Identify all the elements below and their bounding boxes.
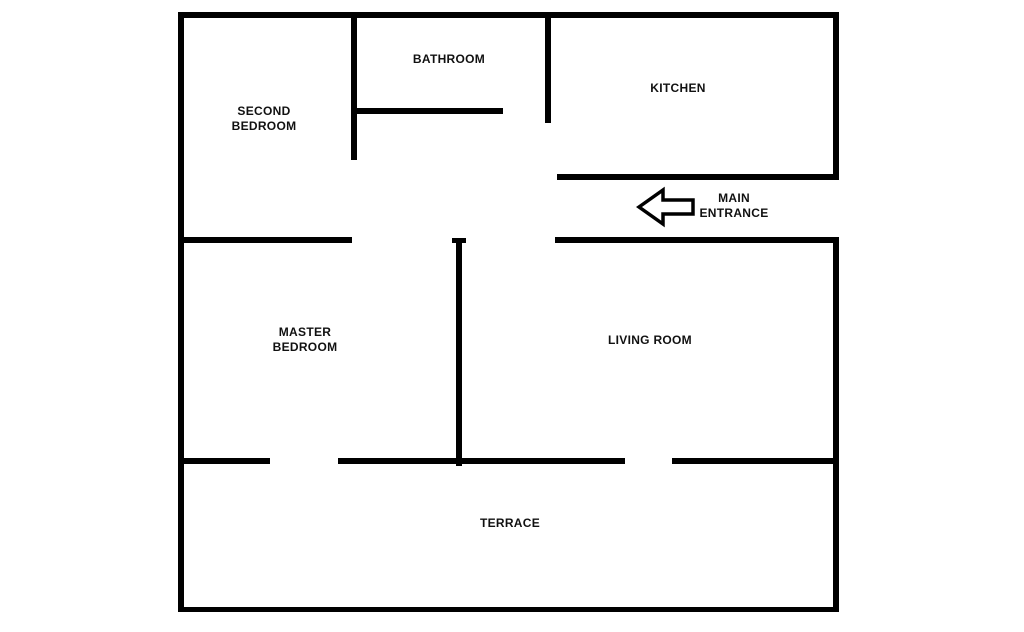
terrace-label: TERRACE [460,516,560,531]
wall-outer-top [178,12,839,18]
wall-bathroom-bottom [351,108,503,114]
wall-hall-bottom-left [178,237,352,243]
wall-outer-left [178,12,184,612]
main-entrance-label: MAIN ENTRANCE [694,191,774,221]
wall-outer-right-upper [833,12,839,180]
floor-plan: SECOND BEDROOM BATHROOM KITCHEN MAIN ENT… [0,0,1024,632]
wall-terrace-top-middle [338,458,625,464]
wall-hall-bottom-right [555,237,839,243]
bathroom-label: BATHROOM [399,52,499,67]
wall-bathroom-kitchen [545,12,551,123]
kitchen-label: KITCHEN [628,81,728,96]
wall-terrace-top-right [672,458,839,464]
second-bedroom-label: SECOND BEDROOM [214,104,314,134]
wall-kitchen-bottom [557,174,839,180]
main-entrance-arrow-icon [636,186,696,228]
living-room-label: LIVING ROOM [590,333,710,348]
wall-terrace-top-left [178,458,270,464]
wall-master-living-divider [456,238,462,466]
master-bedroom-label: MASTER BEDROOM [255,325,355,355]
wall-outer-bottom [178,607,839,612]
wall-secondbedroom-bathroom [351,12,357,160]
wall-outer-right-lower [833,238,839,612]
